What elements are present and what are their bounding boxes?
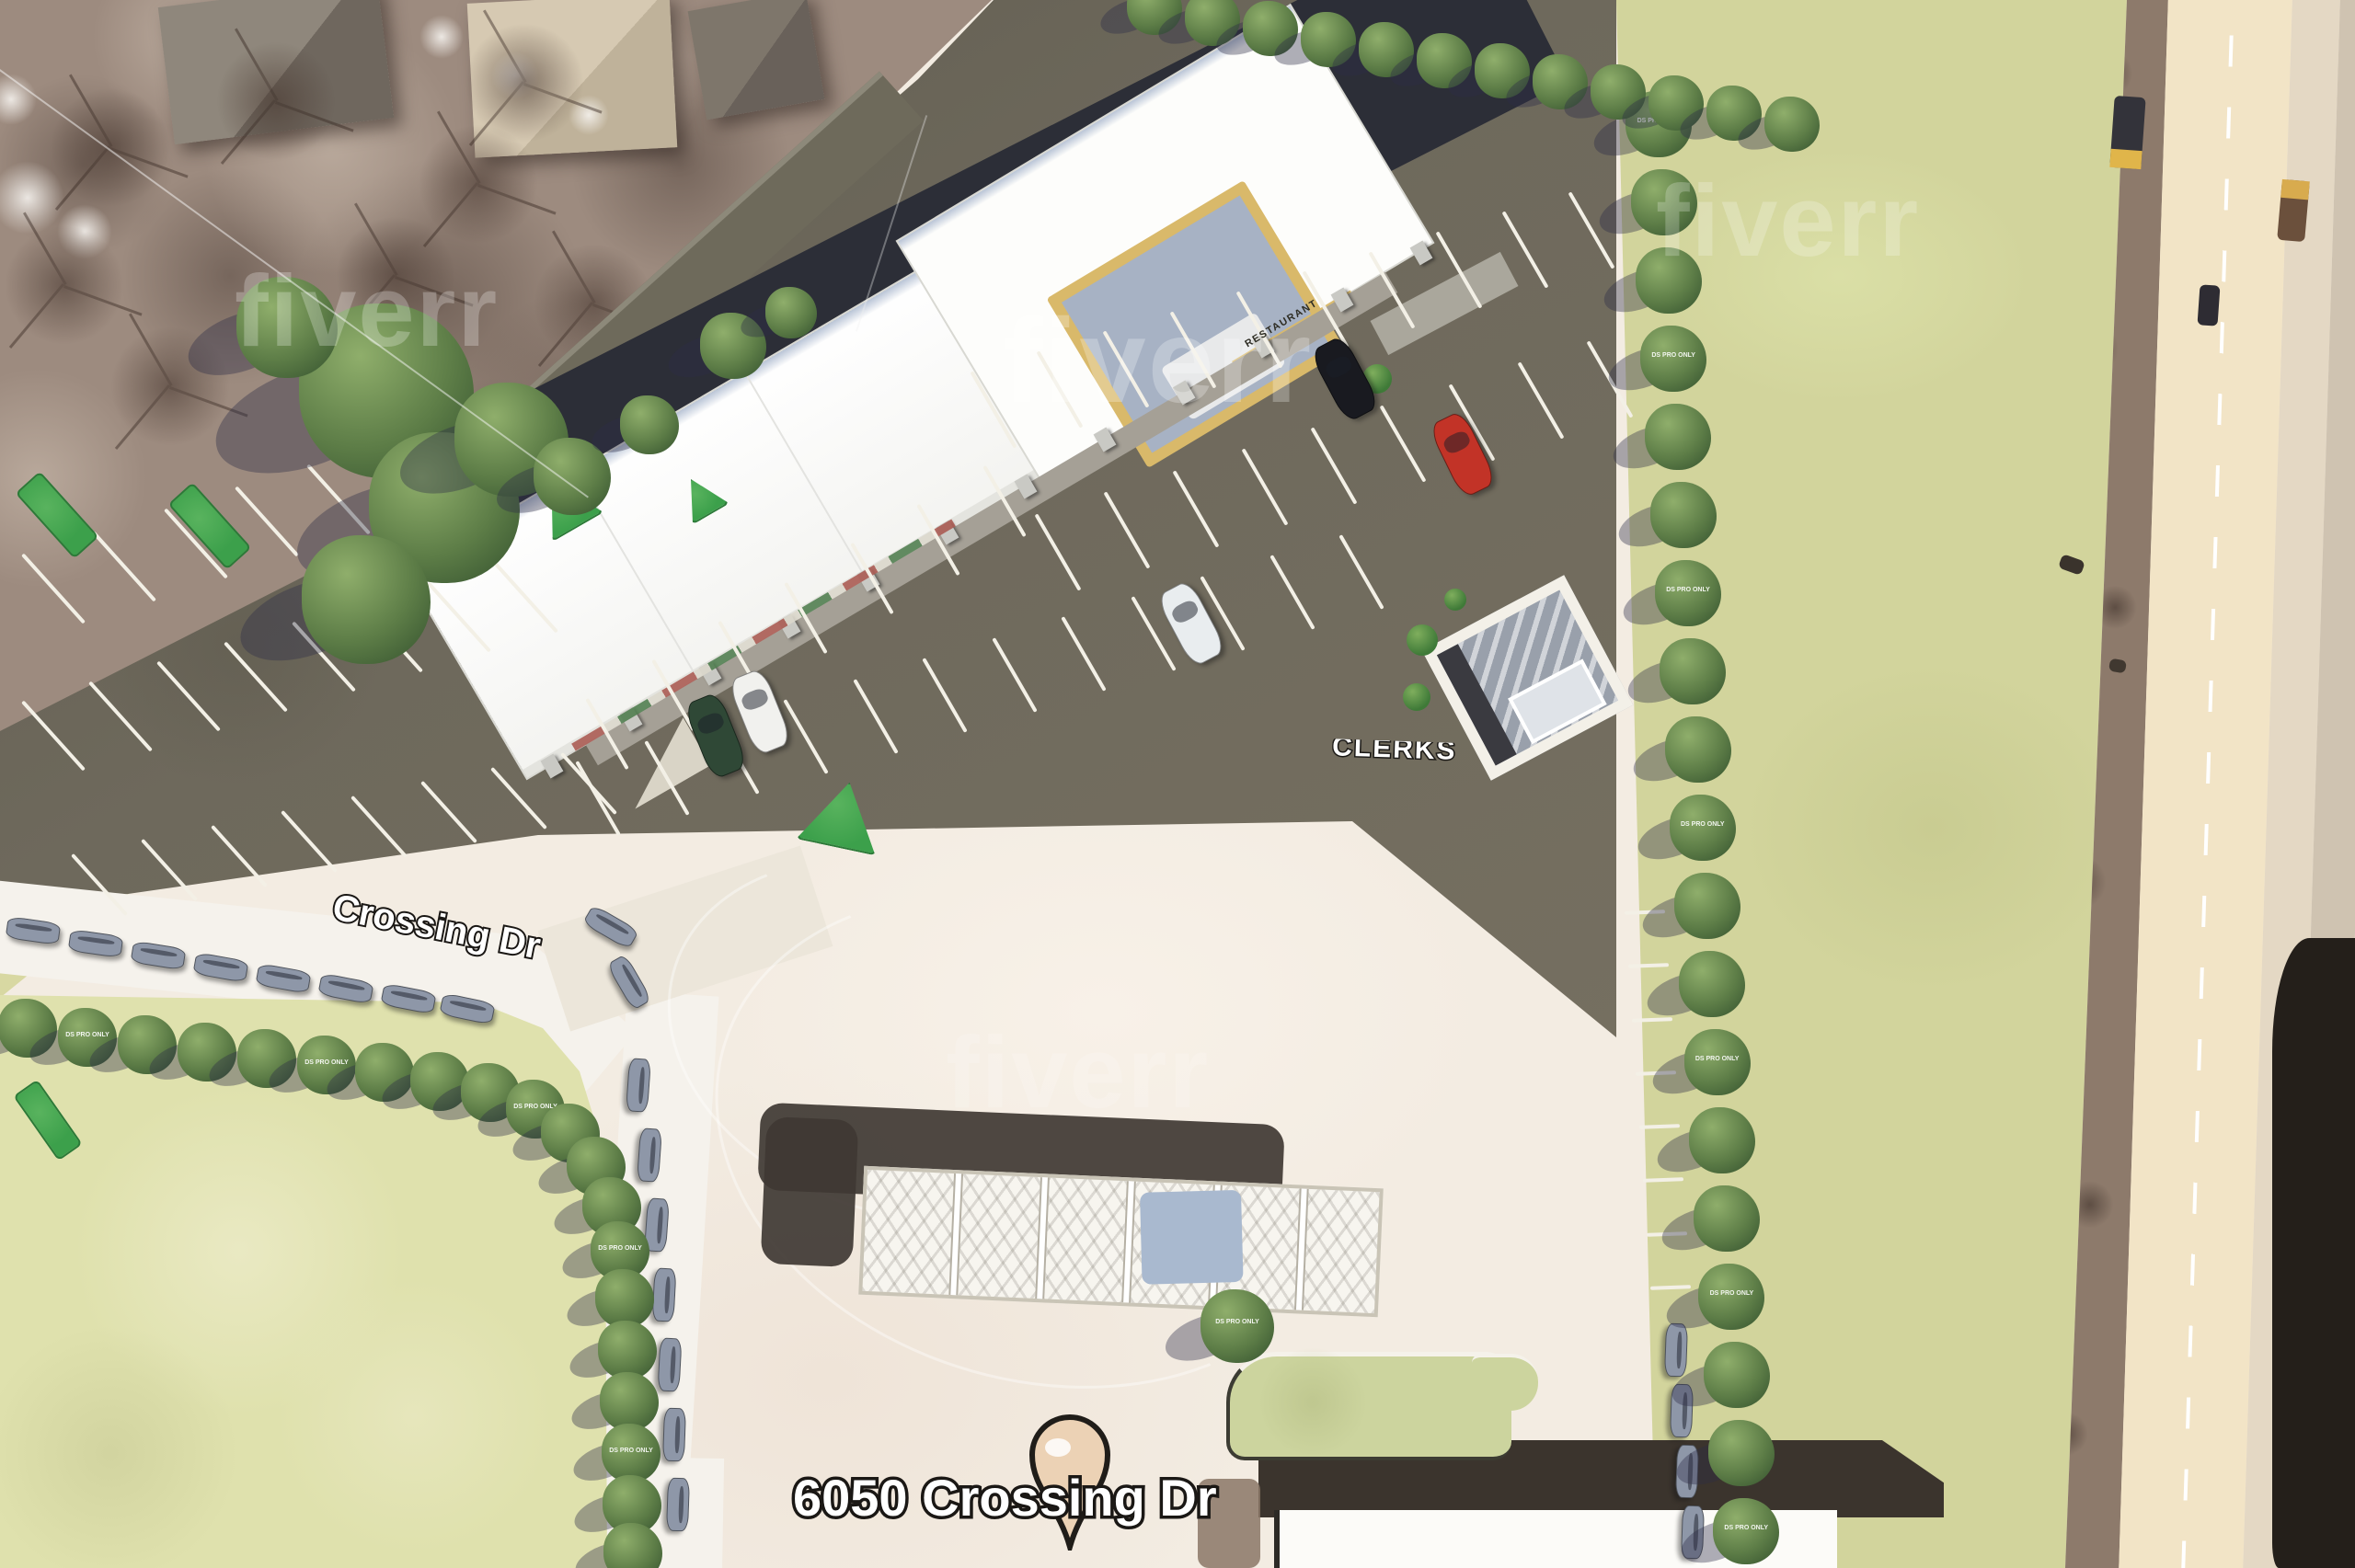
canopy-bay-post: [948, 1173, 963, 1295]
car-windshield: [1677, 1332, 1683, 1368]
car-windshield: [78, 935, 114, 944]
south-building-side-shade: [1198, 1479, 1260, 1568]
car-windshield: [1442, 429, 1472, 455]
car-windshield: [657, 1207, 664, 1243]
tree-row-east: DS PRO ONLY: [1655, 560, 1721, 626]
car-windshield: [1169, 598, 1200, 625]
tree-asset-watermark: DS PRO ONLY: [1684, 1056, 1751, 1062]
car-windshield: [391, 990, 427, 1001]
bare-tree: [51, 87, 170, 207]
road-vehicle: [2109, 96, 2145, 169]
car-windshield: [740, 686, 770, 712]
tree-row-east: DS PRO ONLY: [1670, 795, 1736, 861]
car-windshield: [266, 970, 302, 981]
car-windshield: [695, 710, 726, 736]
bare-branch: [115, 384, 170, 450]
canopy-shadow-wing: [761, 1116, 859, 1267]
brand-watermark: fiverr: [1656, 163, 1920, 280]
snow-patch: [419, 15, 464, 59]
car-windshield: [679, 1486, 684, 1522]
tree-asset-watermark: DS PRO ONLY: [1640, 352, 1706, 359]
tree-asset-watermark: DS PRO ONLY: [602, 1448, 661, 1454]
tree-plaza: DS PRO ONLY: [1200, 1289, 1274, 1363]
tree-border-lawn: [600, 1372, 659, 1431]
street-parked-car: [662, 1408, 686, 1462]
tree-row-east: DS PRO ONLY: [1698, 1264, 1764, 1330]
canopy-bay-post: [1035, 1177, 1050, 1299]
car-windshield: [670, 1346, 676, 1382]
street-parked-car: [657, 1337, 682, 1391]
tree-asset-watermark: DS PRO ONLY: [1670, 821, 1736, 828]
shrub: [1444, 589, 1466, 611]
tree-row-east: [1645, 404, 1711, 470]
tree-asset-watermark: DS PRO ONLY: [591, 1245, 649, 1252]
car-windshield: [203, 959, 239, 970]
bare-branch: [9, 283, 64, 349]
tree-canopy-building: [620, 395, 679, 454]
tree-asset-watermark: DS PRO ONLY: [1655, 587, 1721, 593]
tree-asset-watermark: DS PRO ONLY: [1698, 1290, 1764, 1297]
street-parked-car: [651, 1267, 676, 1322]
car-windshield: [649, 1138, 657, 1173]
hedge-north: [1764, 97, 1820, 152]
roof-seam: [744, 372, 867, 579]
brand-watermark: fiverr: [1003, 292, 1313, 429]
tree-row-east: DS PRO ONLY: [1684, 1029, 1751, 1095]
tree-row-east: [1674, 873, 1740, 939]
lawn-light: [276, 1278, 552, 1554]
tree-row-east: [1650, 482, 1717, 548]
road-vehicle: [2277, 179, 2310, 242]
canopy-tarp: [1139, 1190, 1243, 1285]
bare-tree: [465, 23, 584, 143]
tree-row-east: [1708, 1420, 1775, 1486]
tree-row-east: [1660, 638, 1726, 704]
tree-row-east: DS PRO ONLY: [1713, 1498, 1779, 1564]
truck-cab: [2280, 179, 2310, 200]
house-roof: [688, 0, 825, 120]
canopy-bay-post: [1121, 1181, 1136, 1302]
island-texture: [1258, 1347, 1368, 1458]
tree-row-east: [1679, 951, 1745, 1017]
tree-asset-watermark: DS PRO ONLY: [1200, 1319, 1274, 1325]
tree-border-lawn: [598, 1321, 657, 1379]
road-vehicle: [2197, 284, 2220, 326]
bare-tree: [216, 41, 336, 161]
tree-asset-watermark: DS PRO ONLY: [58, 1032, 117, 1038]
shrub: [1403, 683, 1430, 711]
street-parked-car: [666, 1478, 690, 1532]
street-parked-car: [1664, 1323, 1688, 1378]
brand-watermark: fiverr: [235, 253, 499, 370]
tree-row-east: DS PRO ONLY: [1640, 326, 1706, 392]
aerial-site-render: DS PRO ONLYDS PRO ONLYDS PRO ONLYDS PRO …: [0, 0, 2355, 1568]
bare-branch: [109, 147, 189, 178]
car-windshield: [141, 947, 177, 957]
shrub: [1407, 624, 1438, 656]
tree-asset-watermark: DS PRO ONLY: [297, 1059, 356, 1066]
car-windshield: [664, 1276, 671, 1312]
tree-row-east: [1704, 1342, 1770, 1408]
plaza-green-island: [1226, 1352, 1511, 1460]
car-windshield: [328, 979, 364, 990]
plaza-green-island-ext: [1472, 1354, 1538, 1411]
tree-canopy-building: [302, 535, 431, 664]
truck-cab: [2109, 149, 2142, 169]
tree-border-lawn: [595, 1269, 654, 1328]
brand-watermark: fiverr: [946, 1014, 1210, 1131]
tree-asset-watermark: DS PRO ONLY: [1713, 1525, 1779, 1531]
tree-row-east: [1665, 716, 1731, 783]
tree-row-east: [1694, 1185, 1760, 1252]
tree-row-east: [1689, 1107, 1755, 1173]
car-windshield: [675, 1416, 681, 1452]
canopy-structure: [858, 1166, 1384, 1318]
car-windshield: [450, 1000, 486, 1012]
car-windshield: [638, 1068, 646, 1104]
bare-tree: [5, 225, 124, 345]
woods-corner: [2272, 938, 2355, 1568]
car-windshield: [16, 922, 52, 932]
tree-canopy-building: [765, 287, 817, 338]
tree-border-lawn: DS PRO ONLY: [602, 1424, 661, 1482]
canopy-bay-post: [1293, 1188, 1308, 1310]
car-windshield: [1323, 353, 1354, 381]
